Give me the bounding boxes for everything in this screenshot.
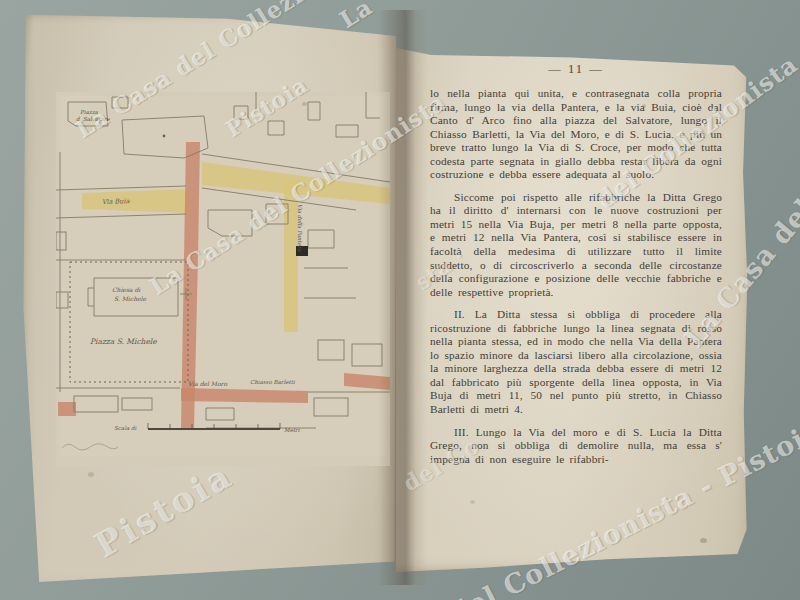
map-label-via-pantera: Via della Pantera	[297, 204, 303, 252]
map-label-piazza-salvatore-2: d. Salvatore	[76, 116, 110, 122]
watermark-text: La	[335, 0, 377, 33]
map-label-piazza-michele: Piazza S. Michele	[90, 337, 157, 346]
building-mark	[163, 135, 166, 138]
map-label-scala: Scala di	[114, 425, 137, 431]
map-label-metri: Metri	[284, 427, 301, 433]
street-red-bottom-left	[58, 402, 76, 416]
map-plate: Piazza d. Salvatore Via Buia Via della P…	[56, 92, 390, 466]
map-label-via-moro: Via del Moro	[188, 380, 227, 387]
map-label-piazza-salvatore-1: Piazza	[80, 109, 99, 115]
page-number: — 11 —	[430, 62, 722, 77]
photo-of-antique-booklet: Piazza d. Salvatore Via Buia Via della P…	[0, 0, 800, 600]
street-via-pantera	[284, 180, 298, 332]
map-paper-center	[60, 96, 386, 456]
right-page: — 11 — lo nella pianta qui unita, e cont…	[396, 40, 748, 572]
map-label-via-buia: Via Buia	[102, 197, 130, 206]
paragraph-3: II. La Ditta stessa si obbliga di proced…	[430, 308, 722, 416]
paragraph-1: lo nella pianta qui unita, e contrasegna…	[430, 87, 722, 182]
map-drawing: Piazza d. Salvatore Via Buia Via della P…	[56, 92, 390, 466]
map-label-chiasso-barletti: Chiasso Barletti	[250, 379, 296, 385]
printed-text-block: — 11 — lo nella pianta qui unita, e cont…	[430, 54, 722, 475]
paragraph-2: Siccome poi rispetto alle rifabbriche la…	[430, 191, 722, 299]
street-via-buia-left	[82, 189, 189, 213]
paragraph-4: III. Lungo la Via del moro e di S. Lucia…	[430, 426, 722, 467]
left-page: Piazza d. Salvatore Via Buia Via della P…	[22, 12, 396, 582]
map-label-chiesa-2: S. Michele	[114, 295, 146, 302]
map-label-chiesa-1: Chiesa di	[112, 286, 141, 293]
